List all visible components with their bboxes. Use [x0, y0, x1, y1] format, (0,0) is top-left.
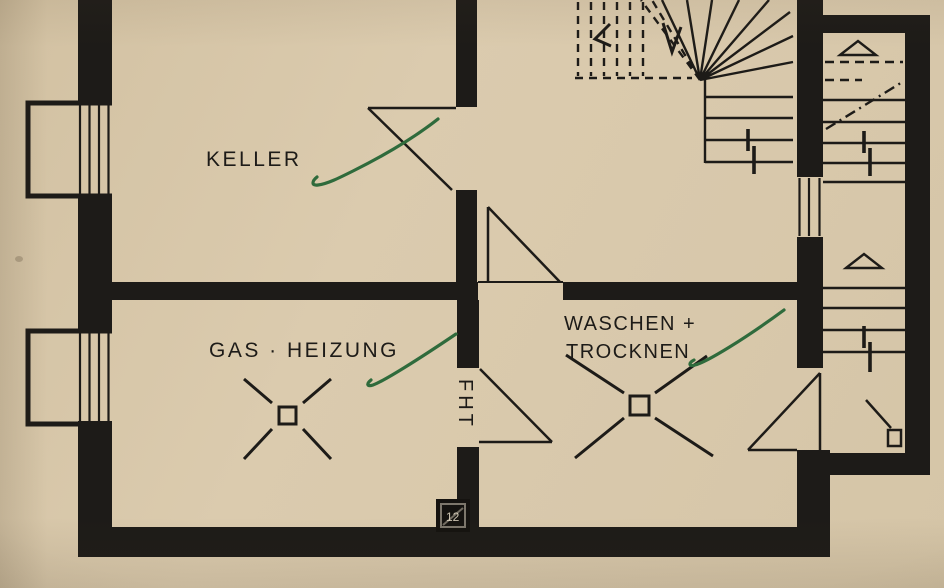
wall-fht-upper [457, 300, 479, 368]
stair-break-mark [748, 129, 754, 174]
interior-stair [575, 0, 793, 174]
door-corridor-exit-leaf [866, 400, 891, 428]
diagonal-center-square [630, 396, 649, 415]
exterior-stair-break-upper [864, 131, 870, 176]
slope-triangle-upper-icon [840, 41, 876, 55]
floor-plan-photo: KELLER GAS · HEIZUNG WASCHEN + TROCKNEN … [0, 0, 944, 588]
wall-horizontal-right [563, 282, 797, 300]
door-fht [479, 369, 552, 442]
arrow-head-large [663, 23, 681, 52]
door-keller [368, 108, 456, 190]
wall-left-upper [78, 0, 112, 103]
paper-speck [15, 256, 23, 262]
diagonal-mark-gas-heizung [244, 379, 331, 459]
diagonal-arms [566, 355, 713, 458]
room-label-gas-heizung: GAS · HEIZUNG [209, 339, 399, 362]
exterior-stair-dashed [825, 62, 903, 80]
checkmark-keller [313, 119, 438, 185]
diagonal-arms [244, 379, 331, 459]
revision-stamp: 12 [436, 499, 470, 532]
stair-dashed-treads [578, 2, 643, 76]
room-label-waschen-line2: TROCKNEN [566, 341, 690, 363]
diagonal-center-square [279, 407, 296, 424]
room-diagonal-marks [244, 355, 713, 459]
window-corridor-glazing [800, 178, 820, 236]
windows [80, 104, 820, 423]
wall-keller-hall-upper [456, 0, 477, 107]
exterior-stair-break-lower [864, 326, 870, 372]
stamp-number: 12 [446, 510, 460, 524]
door-corridor-exit-panel [888, 430, 901, 446]
diagonal-mark-waschen [566, 355, 713, 458]
window-heizung-glazing [80, 332, 109, 423]
wall-right [905, 15, 930, 475]
stair-dashed-winders [641, 0, 700, 80]
walls [78, 0, 930, 557]
window-keller-glazing [80, 104, 109, 195]
door-hall-waschen [488, 207, 560, 282]
door-label-fht: FHT [454, 379, 476, 430]
exterior-stair [823, 41, 905, 372]
wall-corridor-middle [797, 237, 823, 368]
wall-left-middle [78, 195, 112, 332]
slope-triangle-lower-icon [846, 254, 882, 268]
wall-horizontal-left [95, 282, 478, 300]
wall-corridor-bottom [823, 453, 930, 475]
door-waschen-corridor [748, 373, 820, 450]
room-label-keller: KELLER [206, 148, 302, 171]
room-label-waschen-line1: WASCHEN + [564, 313, 696, 335]
exterior-stair-dashed-treads [825, 62, 903, 80]
basement-floor-plan: KELLER GAS · HEIZUNG WASCHEN + TROCKNEN … [0, 0, 944, 588]
stair-winder-fan [662, 0, 793, 80]
wall-keller-hall-lower [456, 190, 477, 282]
